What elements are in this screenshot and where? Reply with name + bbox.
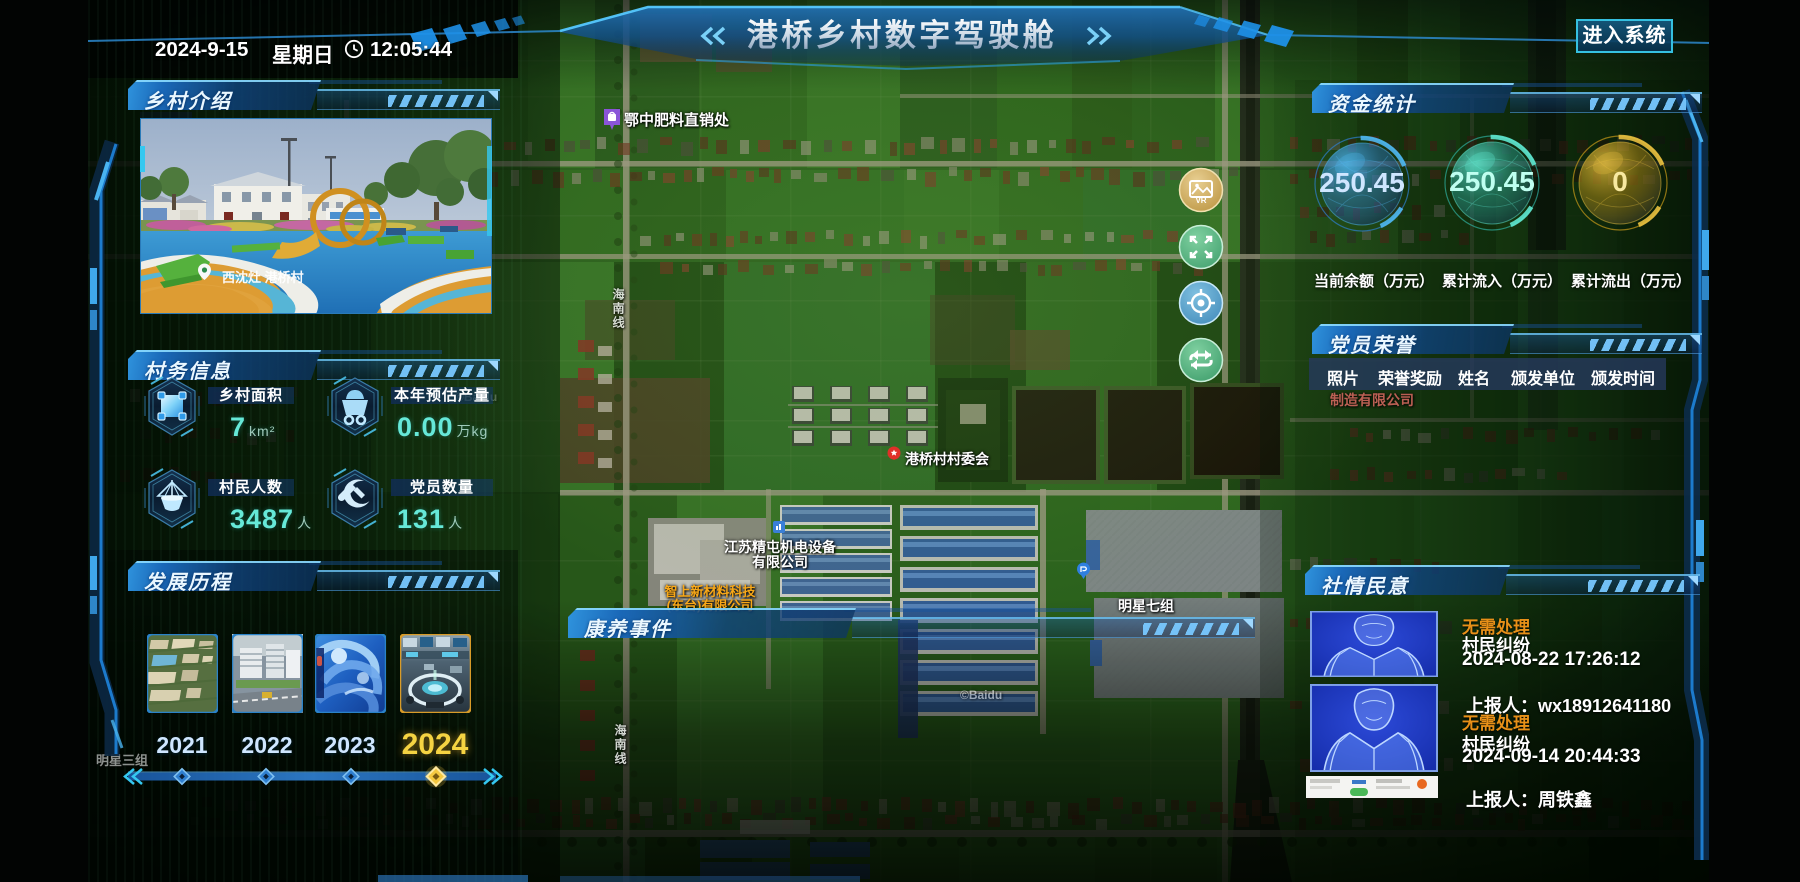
svg-text:0: 0: [1612, 166, 1628, 197]
svg-text:西沈灶 港桥村: 西沈灶 港桥村: [222, 270, 304, 285]
svg-text:VR: VR: [1195, 196, 1206, 205]
svg-text:港桥乡村数字驾驶舱: 港桥乡村数字驾驶舱: [747, 18, 1058, 53]
svg-text:250.45: 250.45: [1319, 167, 1405, 198]
svg-text:250.45: 250.45: [1449, 166, 1535, 197]
